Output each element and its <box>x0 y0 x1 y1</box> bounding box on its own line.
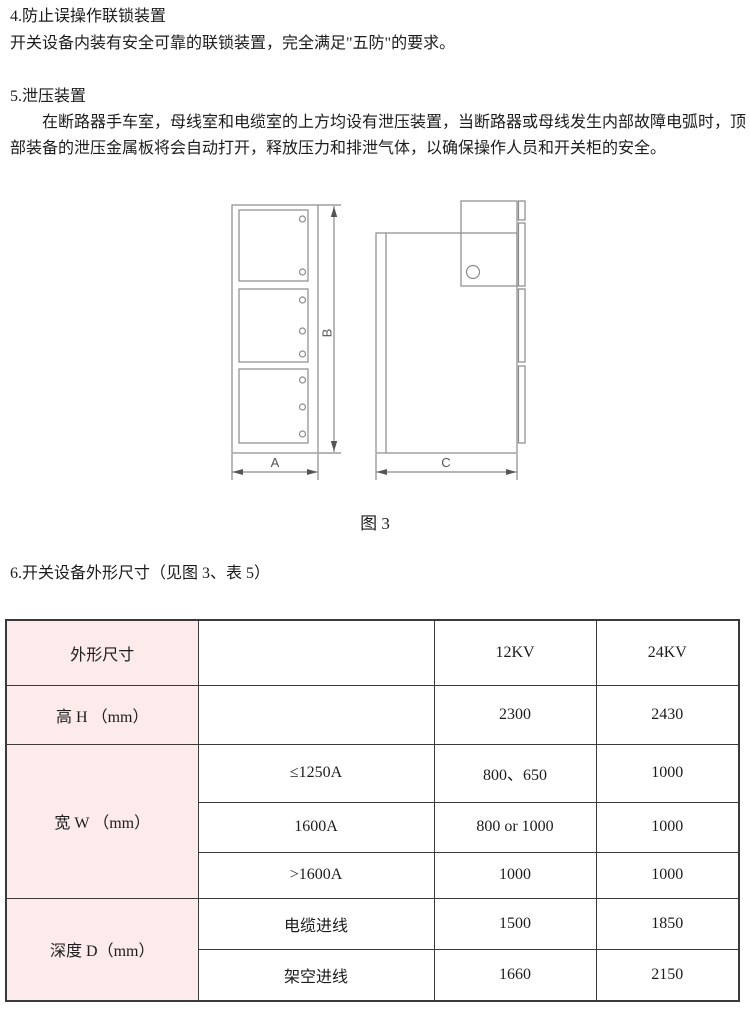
height-value-24kv: 2430 <box>596 685 739 744</box>
table-row: 深度 D（mm） 电缆进线 1500 1850 <box>6 898 739 949</box>
arrow-left-icon <box>377 469 388 475</box>
width-condition-1: ≤1250A <box>198 744 434 802</box>
depth-value-24kv-2: 2150 <box>596 949 739 1001</box>
dimension-c-label: C <box>441 455 450 470</box>
width-value-24kv-2: 1000 <box>596 802 739 852</box>
side-view-outline <box>376 233 517 453</box>
width-value-12kv-2: 800 or 1000 <box>434 802 596 852</box>
width-condition-3: >1600A <box>198 852 434 898</box>
arrow-right-icon <box>506 469 517 475</box>
dimensions-table: 外形尺寸 12KV 24KV 高 H （mm） 2300 2430 宽 W （m… <box>5 619 740 1002</box>
side-view-rear-strips <box>519 201 526 443</box>
table-cell-empty <box>198 685 434 744</box>
cabinet-front-view <box>232 205 318 453</box>
dimension-b: B <box>318 205 341 453</box>
table-row: 高 H （mm） 2300 2430 <box>6 685 739 744</box>
table-header-24kv: 24KV <box>596 620 739 685</box>
cabinet-panel-middle <box>239 289 308 362</box>
width-value-24kv-3: 1000 <box>596 852 739 898</box>
figure-3-caption: 图 3 <box>0 509 750 534</box>
section-5-heading: 5.泄压装置 <box>10 87 86 106</box>
height-value-12kv: 2300 <box>434 685 596 744</box>
arrow-down-icon <box>331 441 337 452</box>
section-6-heading: 6.开关设备外形尺寸（见图 3、表 5） <box>10 564 270 583</box>
cabinet-side-view <box>376 201 525 453</box>
document-page: 4.防止误操作联锁装置 开关设备内装有安全可靠的联锁装置，完全满足"五防"的要求… <box>0 0 750 1021</box>
section-4-heading: 4.防止误操作联锁装置 <box>10 7 166 26</box>
dimension-a-label: A <box>271 455 280 470</box>
side-view-top-box <box>461 201 517 286</box>
depth-value-24kv-1: 1850 <box>596 898 739 949</box>
panel-knob-circles <box>300 216 306 437</box>
cabinet-panel-bottom <box>239 369 308 443</box>
row-label-depth: 深度 D（mm） <box>6 898 198 1001</box>
arrow-left-icon <box>233 469 244 475</box>
depth-value-12kv-2: 1660 <box>434 949 596 1001</box>
section-5-body-line-2: 部装备的泄压金属板将会自动打开，释放压力和排泄气体，以确保操作人员和开关柜的安全… <box>10 139 666 158</box>
table-row: 宽 W （mm） ≤1250A 800、650 1000 <box>6 744 739 802</box>
arrow-up-icon <box>331 207 337 218</box>
arrow-right-icon <box>307 469 318 475</box>
width-condition-2: 1600A <box>198 802 434 852</box>
row-label-width: 宽 W （mm） <box>6 744 198 898</box>
row-label-height: 高 H （mm） <box>6 685 198 744</box>
table-header-dimension: 外形尺寸 <box>6 620 198 685</box>
table-row: 外形尺寸 12KV 24KV <box>6 620 739 685</box>
section-4-body: 开关设备内装有安全可靠的联锁装置，完全满足"五防"的要求。 <box>10 34 455 53</box>
width-value-24kv-1: 1000 <box>596 744 739 802</box>
cabinet-panel-top <box>239 210 308 281</box>
table-cell-empty <box>198 620 434 685</box>
figure-3-diagram: B A C <box>205 192 545 492</box>
dimension-c: C <box>376 454 517 480</box>
depth-condition-2: 架空进线 <box>198 949 434 1001</box>
depth-condition-1: 电缆进线 <box>198 898 434 949</box>
side-view-knob-circle <box>467 266 480 279</box>
dimension-b-label: B <box>320 329 335 338</box>
table-header-12kv: 12KV <box>434 620 596 685</box>
width-value-12kv-3: 1000 <box>434 852 596 898</box>
section-5-body-line-1: 在断路器手车室，母线室和电缆室的上方均设有泄压装置，当断路器或母线发生内部故障电… <box>10 113 746 132</box>
dimension-a: A <box>232 454 318 480</box>
width-value-12kv-1: 800、650 <box>434 744 596 802</box>
depth-value-12kv-1: 1500 <box>434 898 596 949</box>
